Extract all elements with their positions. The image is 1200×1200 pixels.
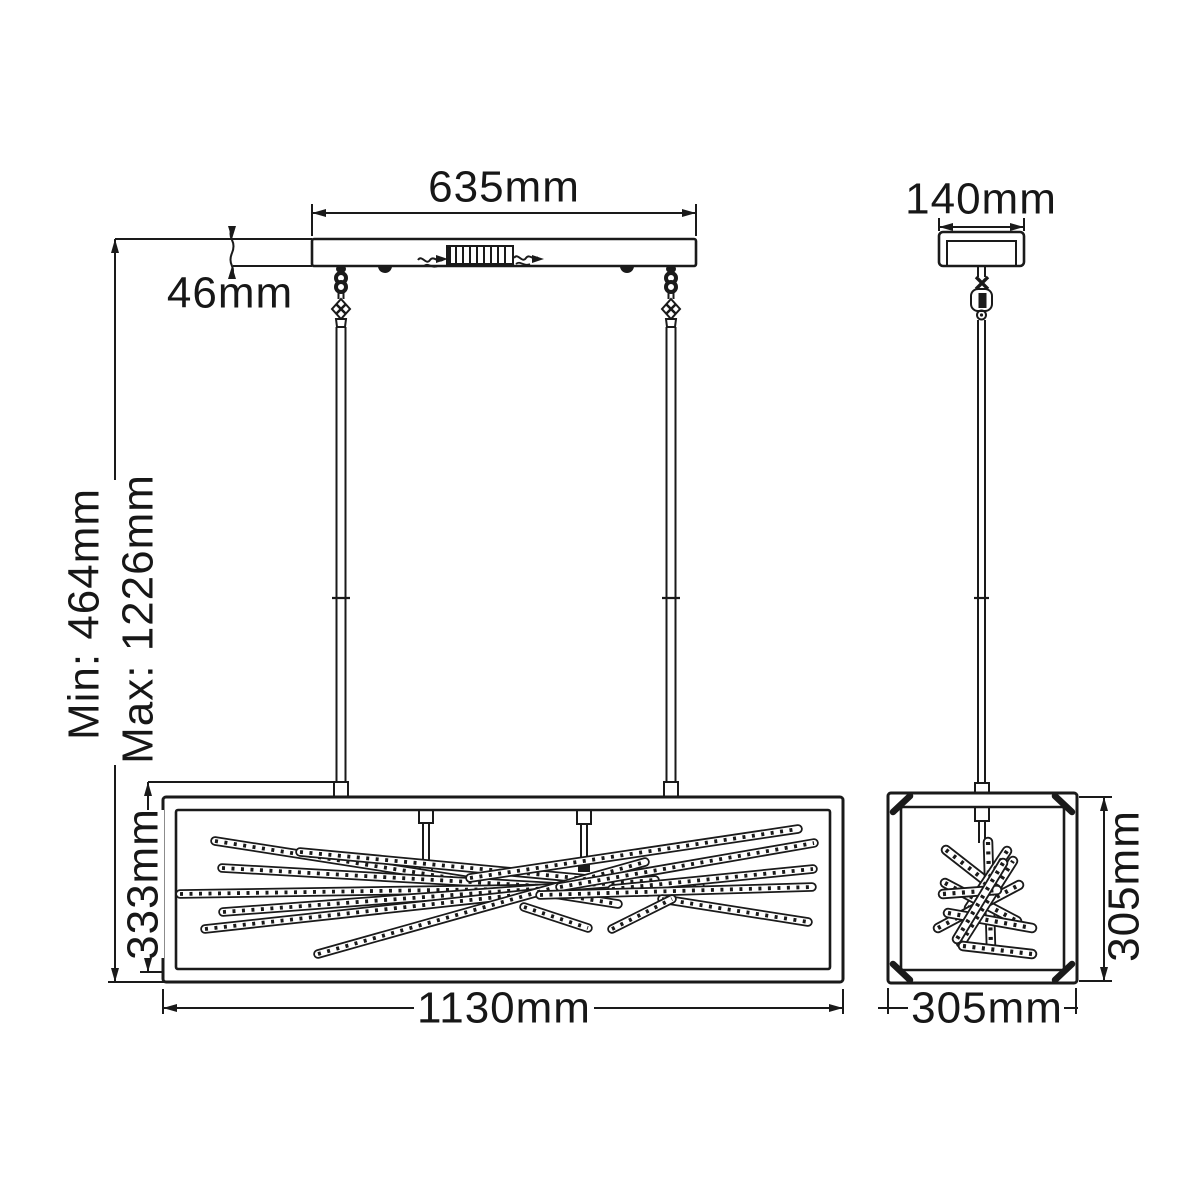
side-shade-height-label: 305mm (1100, 810, 1149, 962)
dim-shade-width-front: 1130mm (163, 984, 843, 1033)
side-canopy-width-label: 140mm (905, 175, 1057, 224)
front-shade-width-label: 1130mm (417, 984, 591, 1033)
technical-drawing: 635mm 46mm Min: 464mm Max: 1226mm (0, 0, 1200, 1200)
dim-canopy-width-side: 140mm (905, 175, 1057, 232)
front-canopy-width-label: 635mm (428, 163, 580, 212)
side-shade-width-label: 305mm (911, 984, 1063, 1033)
canopy-nub (620, 266, 634, 273)
drawing-canvas: 635mm 46mm Min: 464mm Max: 1226mm (0, 0, 1200, 1200)
side-canopy (939, 232, 1024, 266)
canopy-nub (378, 266, 392, 273)
side-rod (974, 320, 989, 793)
front-view (115, 239, 843, 982)
front-shade-height-label: 333mm (119, 808, 168, 960)
dim-shade-height-side: 305mm (1079, 797, 1149, 981)
max-height-label: Max: 1226mm (114, 474, 163, 764)
side-swivel (971, 266, 992, 320)
dim-shade-width-side: 305mm (878, 984, 1078, 1033)
dim-shade-height-front: 333mm (108, 782, 334, 982)
min-height-label: Min: 464mm (60, 488, 109, 740)
side-starburst-sticks (938, 842, 1032, 954)
side-view (888, 232, 1077, 983)
dim-canopy-width-front: 635mm (312, 163, 696, 237)
spring-symbol (418, 245, 544, 267)
front-rods (332, 327, 680, 797)
front-sticks (180, 829, 814, 954)
front-canopy-height-label: 46mm (167, 269, 293, 318)
